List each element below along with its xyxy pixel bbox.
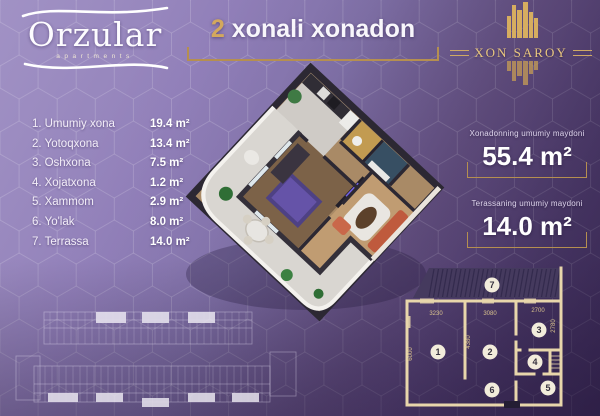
building-towers-icon	[450, 2, 592, 40]
title-text: xonali xonadon	[232, 15, 415, 43]
room-marker-3: 3	[536, 325, 541, 335]
room-index: 7.	[32, 236, 42, 248]
apartment-area-value: 55.4 m²	[467, 143, 587, 169]
room-name: Yotoqxona	[45, 138, 99, 150]
page-title: 2xonali xonadon	[186, 15, 440, 61]
room-name: Terrassa	[45, 236, 89, 248]
brand-name: XON SAROY	[469, 45, 572, 61]
title-room-count: 2	[211, 15, 225, 43]
room-marker-2: 2	[487, 347, 492, 357]
orzular-logo: Orzular apartments	[16, 4, 174, 74]
room-index: 5.	[32, 196, 42, 208]
title-bracket	[187, 47, 439, 61]
room-name: Yo'lak	[45, 216, 75, 228]
dim-room3-width: 2700	[531, 308, 545, 314]
terrace-area-label: Terassaning umumiy maydoni	[456, 199, 598, 208]
apartment-area: 55.4 m²	[467, 143, 587, 178]
room-name: Umumiy xona	[45, 118, 115, 130]
room-marker-4: 4	[532, 357, 537, 367]
dim-room3-height: 2780	[551, 319, 557, 333]
area-summary: Xonadonning umumiy maydoni 55.4 m² Teras…	[456, 129, 598, 269]
xon-saroy-brand: XON SAROY	[450, 2, 592, 92]
room-index: 4.	[32, 177, 42, 189]
terrace-area-value: 14.0 m²	[467, 213, 587, 239]
logo-text: Orzular	[16, 18, 174, 52]
room-marker-6: 6	[489, 385, 494, 395]
room-marker-1: 1	[435, 347, 440, 357]
room-marker-7: 7	[489, 280, 494, 290]
brand-right-line	[573, 50, 592, 56]
room-marker-5: 5	[545, 383, 550, 393]
room-name: Oshxona	[45, 157, 91, 169]
dim-room1-height: 6000	[408, 347, 414, 361]
building-reflection-icon	[450, 61, 592, 87]
entry-door	[504, 401, 520, 408]
floor-plan-2d: 3230 3080 2700 6000 4380 2780 1 2 3 4 5 …	[396, 264, 600, 414]
room-name: Xammom	[45, 196, 94, 208]
building-elevations	[8, 298, 308, 414]
dim-room2-width: 3080	[483, 311, 497, 317]
room-index: 2.	[32, 138, 42, 150]
dim-room1-width: 3230	[429, 311, 443, 317]
logo-bottom-wave-icon	[19, 60, 171, 74]
room-name: Xojatxona	[45, 177, 96, 189]
room-index: 1.	[32, 118, 42, 130]
logo-subtitle: apartments	[16, 53, 174, 60]
dim-room2-height: 4380	[466, 335, 472, 349]
room-index: 3.	[32, 157, 42, 169]
room-index: 6.	[32, 216, 42, 228]
apartment-area-label: Xonadonning umumiy maydoni	[456, 129, 598, 138]
flyer: Orzular apartments 2xonali xonadon XON S…	[0, 0, 600, 416]
terrace-area: 14.0 m²	[467, 213, 587, 248]
brand-left-line	[450, 50, 469, 56]
